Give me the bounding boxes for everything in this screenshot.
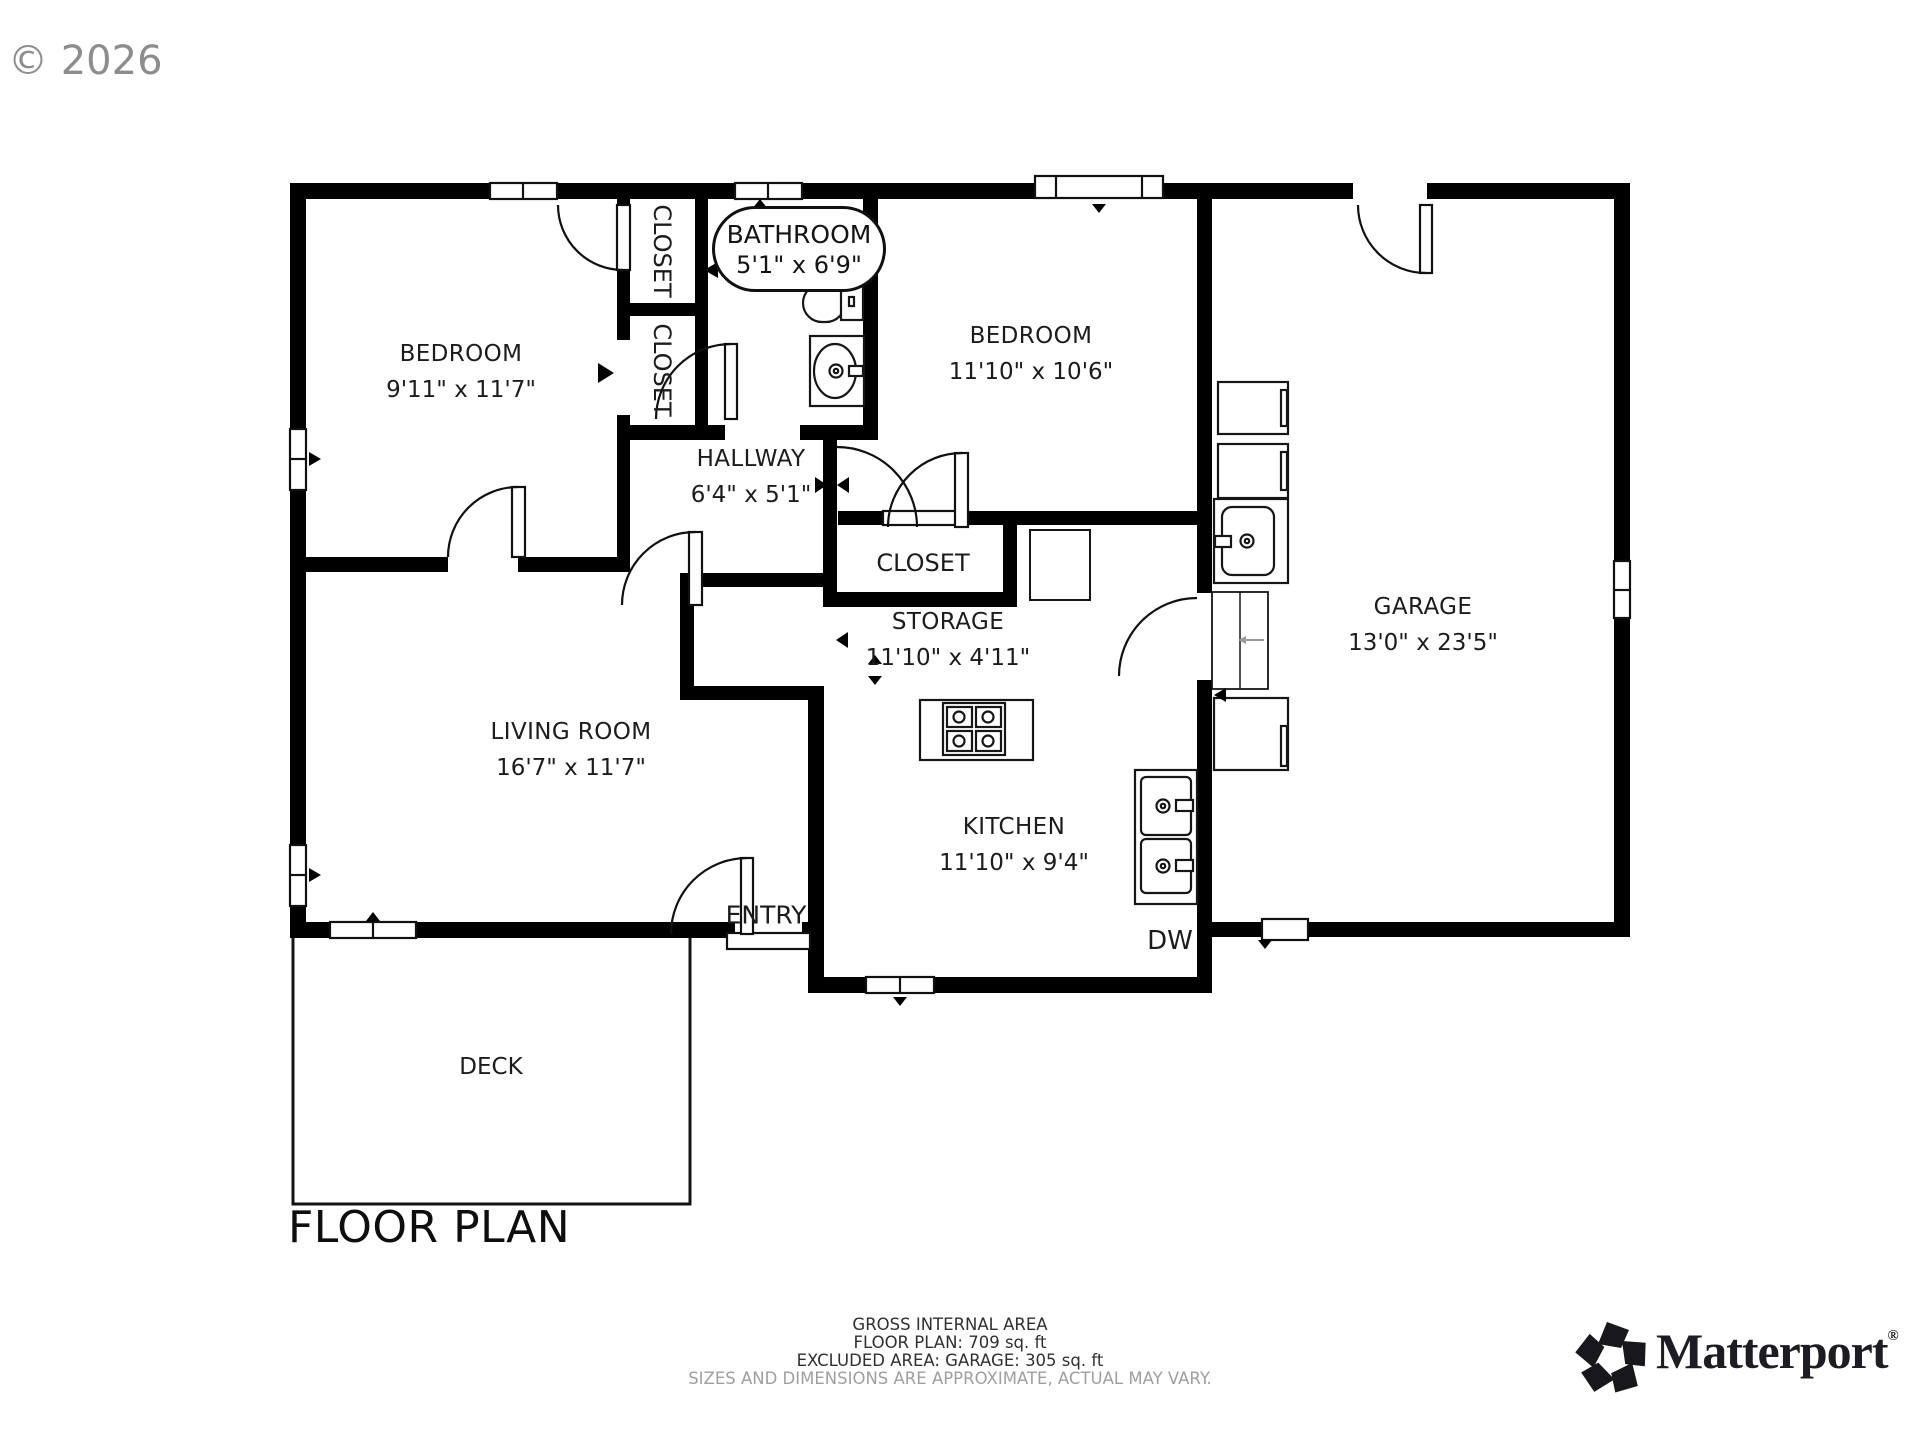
closet-bifold-door: [883, 511, 963, 525]
dishwasher-label: DW: [1147, 926, 1193, 956]
bedroom2-name: BEDROOM: [949, 323, 1113, 349]
window-bedroom1-left: [290, 429, 306, 490]
bathroom-sink-icon: [810, 336, 864, 406]
storage-dims: 11'10" x 4'11": [866, 645, 1030, 671]
direction-markers: [309, 199, 1272, 1006]
kitchen-sink-icon: [1135, 770, 1197, 904]
closet-mid-label: CLOSET: [648, 323, 676, 416]
bathroom-label: BATHROOM 5'1" x 6'9": [712, 206, 886, 292]
window-living-bottom: [330, 922, 416, 938]
deck-label: DECK: [459, 1054, 522, 1080]
hallway-label: HALLWAY 6'4" x 5'1": [691, 446, 812, 508]
living-room-dims: 16'7" x 11'7": [491, 755, 652, 781]
footer-line-4: SIZES AND DIMENSIONS ARE APPROXIMATE, AC…: [688, 1370, 1212, 1388]
window-kitchen-bottom: [866, 977, 934, 993]
matterport-logo-icon: [1572, 1316, 1652, 1400]
footer-line-2: FLOOR PLAN: 709 sq. ft: [688, 1334, 1212, 1352]
door-garage-top: [1358, 205, 1432, 273]
entry-threshold: [727, 933, 810, 949]
living-room-label: LIVING ROOM 16'7" x 11'7": [491, 719, 652, 781]
hallway-name: HALLWAY: [691, 446, 812, 472]
footer-disclaimer: GROSS INTERNAL AREA FLOOR PLAN: 709 sq. …: [688, 1316, 1212, 1388]
storage-name: STORAGE: [866, 609, 1030, 635]
door-hallway-living: [622, 532, 702, 605]
dryer-icon: [1218, 444, 1288, 498]
bedroom2-label: BEDROOM 11'10" x 10'6": [949, 323, 1113, 385]
stove-icon: [920, 700, 1033, 760]
garage-label: GARAGE 13'0" x 23'5": [1348, 594, 1498, 656]
door-garage-storage: [1119, 598, 1197, 676]
bathroom-dims: 5'1" x 6'9": [736, 251, 862, 279]
window-living-left: [290, 845, 306, 906]
floor-plan-page: © 2026 BEDROOM 9'11" x 11'7" BATHROOM 5'…: [0, 0, 1920, 1440]
door-closet-top: [558, 205, 630, 270]
window-bedroom1-top: [490, 183, 557, 199]
water-heater-icon: [1030, 530, 1090, 600]
closet-top-label: CLOSET: [648, 204, 676, 297]
kitchen-label: KITCHEN 11'10" x 9'4": [939, 814, 1089, 876]
footer-line-1: GROSS INTERNAL AREA: [688, 1316, 1212, 1334]
kitchen-name: KITCHEN: [939, 814, 1089, 840]
registered-mark-icon: ®: [1888, 1328, 1899, 1344]
bedroom1-name: BEDROOM: [386, 341, 536, 367]
garage-rear-opening: [1262, 919, 1308, 940]
bedroom1-dims: 9'11" x 11'7": [386, 377, 536, 403]
bedroom2-dims: 11'10" x 10'6": [949, 359, 1113, 385]
entry-label: ENTRY: [726, 901, 807, 930]
footer-line-3: EXCLUDED AREA: GARAGE: 305 sq. ft: [688, 1352, 1212, 1370]
living-room-name: LIVING ROOM: [491, 719, 652, 745]
window-garage-right: [1614, 561, 1630, 618]
window-bathroom-top: [735, 183, 802, 199]
closet-hall-label: CLOSET: [876, 549, 969, 577]
refrigerator-icon: [1214, 698, 1288, 770]
copyright-watermark: © 2026: [8, 38, 163, 84]
garage-dims: 13'0" x 23'5": [1348, 630, 1498, 656]
kitchen-dims: 11'10" x 9'4": [939, 850, 1089, 876]
washer-icon: [1218, 382, 1288, 434]
matterport-logo-text: Matterport®: [1656, 1322, 1899, 1380]
window-bedroom2-top: [1035, 176, 1163, 198]
storage-label: STORAGE 11'10" x 4'11": [866, 609, 1030, 671]
bathroom-name: BATHROOM: [727, 220, 872, 249]
page-title: FLOOR PLAN: [288, 1202, 570, 1253]
garage-name: GARAGE: [1348, 594, 1498, 620]
hallway-dims: 6'4" x 5'1": [691, 482, 812, 508]
door-bedroom1: [448, 487, 525, 557]
bedroom1-label: BEDROOM 9'11" x 11'7": [386, 341, 536, 403]
utility-sink-icon: [1214, 499, 1288, 583]
garage-door-icon: [1212, 592, 1268, 689]
